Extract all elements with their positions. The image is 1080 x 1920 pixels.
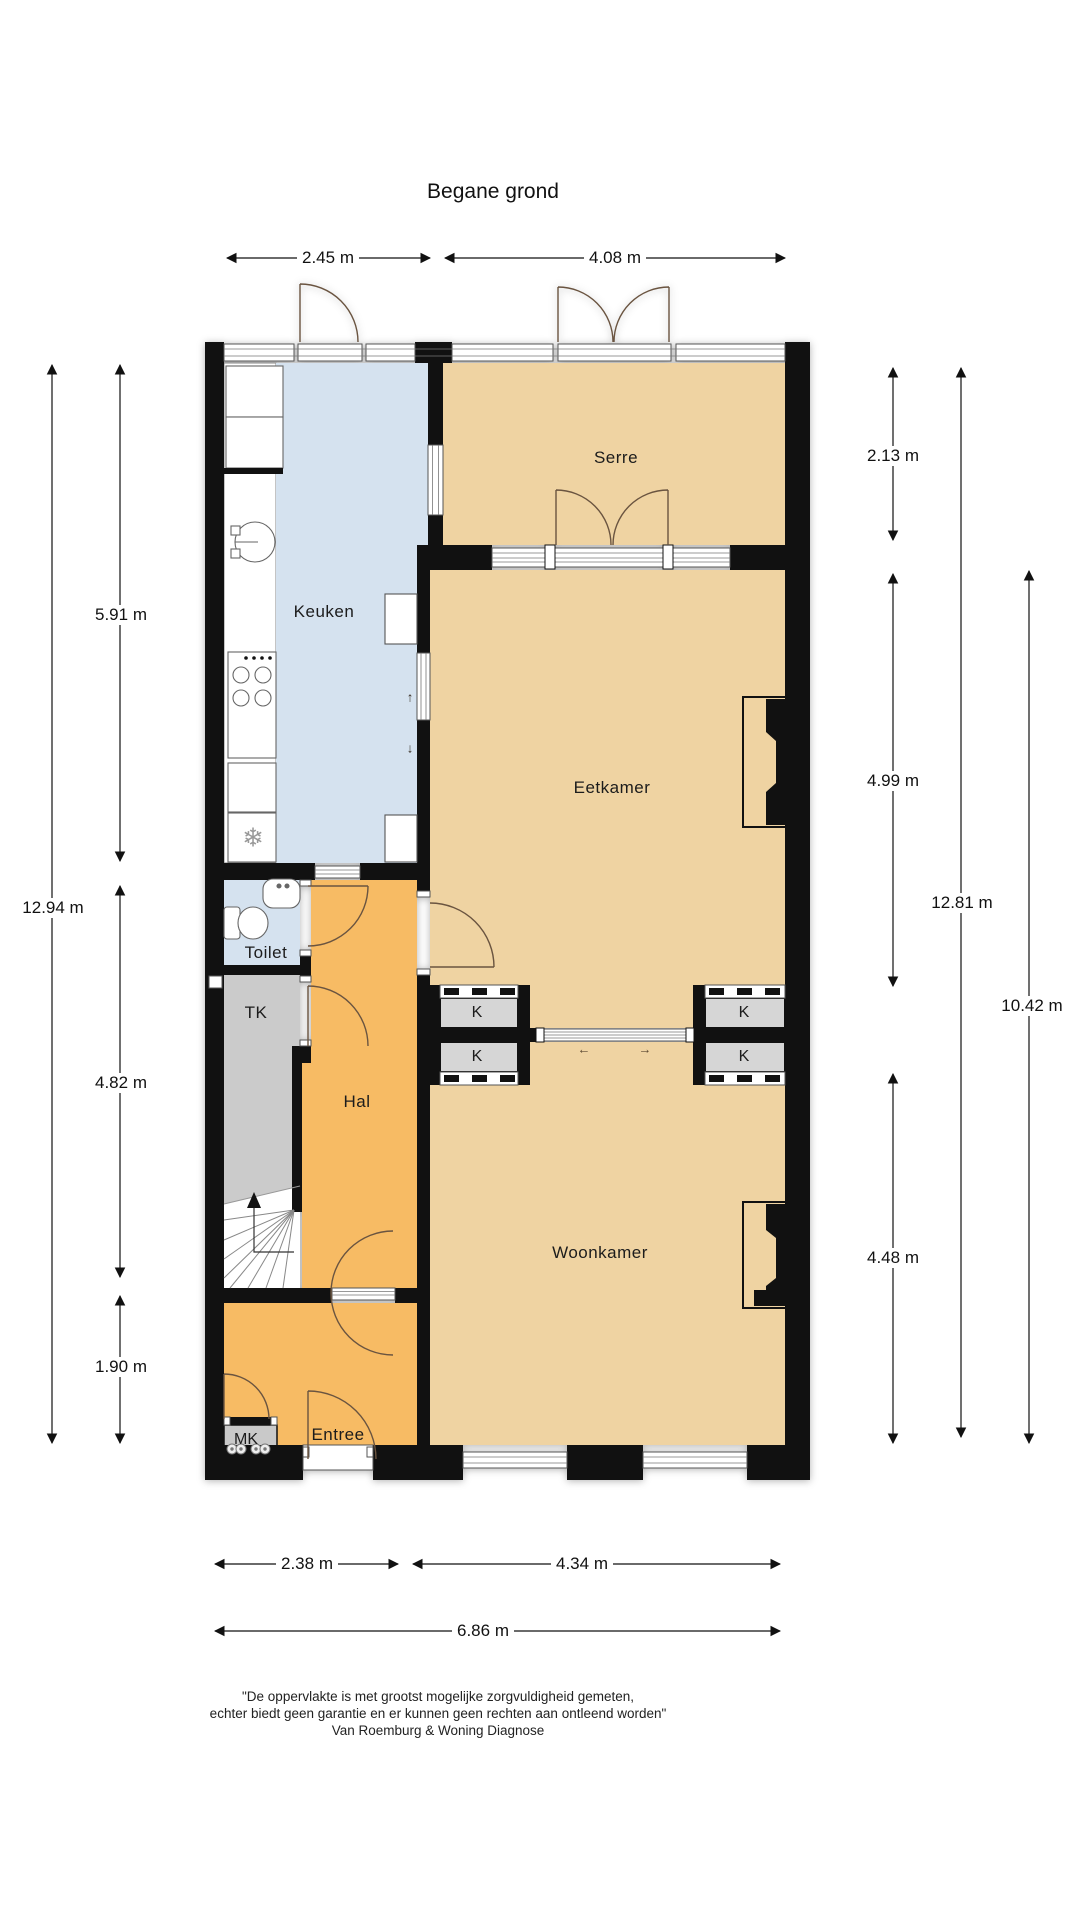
closet-label-k2: K [472,1048,483,1066]
dim-left-hal: 4.82 m [90,1073,152,1093]
sliding-door-arrow-right-icon: → [639,1042,652,1057]
room-label-eetkamer: Eetkamer [574,778,651,798]
passage-arrow-down-icon: ↓ [407,741,414,756]
room-label-keuken: Keuken [294,602,355,622]
floor-plan-drawing [0,0,1080,1920]
floor-plan-page: Begane grond 2.45 m 4.08 m 2.38 m 4.34 m… [0,0,1080,1920]
room-label-hal: Hal [343,1092,370,1112]
dim-right-outer-total: 10.42 m [996,996,1067,1016]
room-label-woonkamer: Woonkamer [552,1243,648,1263]
disclaimer-line-3: Van Roemburg & Woning Diagnose [332,1723,545,1738]
closet-label-k3: K [739,1004,750,1022]
dim-bottom-left: 2.38 m [276,1554,338,1574]
dim-right-serre: 2.13 m [862,446,924,466]
disclaimer-line-1: "De oppervlakte is met grootst mogelijke… [242,1689,634,1704]
room-label-entree: Entree [311,1425,364,1445]
closet-label-k1: K [472,1004,483,1022]
room-label-serre: Serre [594,448,638,468]
page-title: Begane grond [427,180,559,204]
room-label-tk: TK [245,1003,268,1023]
dim-right-inner-total: 12.81 m [926,893,997,913]
dim-left-total: 12.94 m [17,898,88,918]
disclaimer-line-2: echter biedt geen garantie en er kunnen … [210,1706,667,1721]
dim-left-entree: 1.90 m [90,1357,152,1377]
passage-arrow-up-icon: ↑ [407,690,414,705]
dim-right-woonkamer: 4.48 m [862,1248,924,1268]
room-label-mk: MK [234,1431,258,1449]
sliding-door-arrow-left-icon: ← [578,1042,591,1057]
dim-bottom-total: 6.86 m [452,1621,514,1641]
closet-label-k4: K [739,1048,750,1066]
room-label-toilet: Toilet [245,943,288,963]
dim-left-keuken: 5.91 m [90,605,152,625]
dim-bottom-right: 4.34 m [551,1554,613,1574]
dim-top-left: 2.45 m [297,248,359,268]
dim-right-eetkamer: 4.99 m [862,771,924,791]
dim-top-right: 4.08 m [584,248,646,268]
freezer-icon: ❄ [242,823,264,854]
